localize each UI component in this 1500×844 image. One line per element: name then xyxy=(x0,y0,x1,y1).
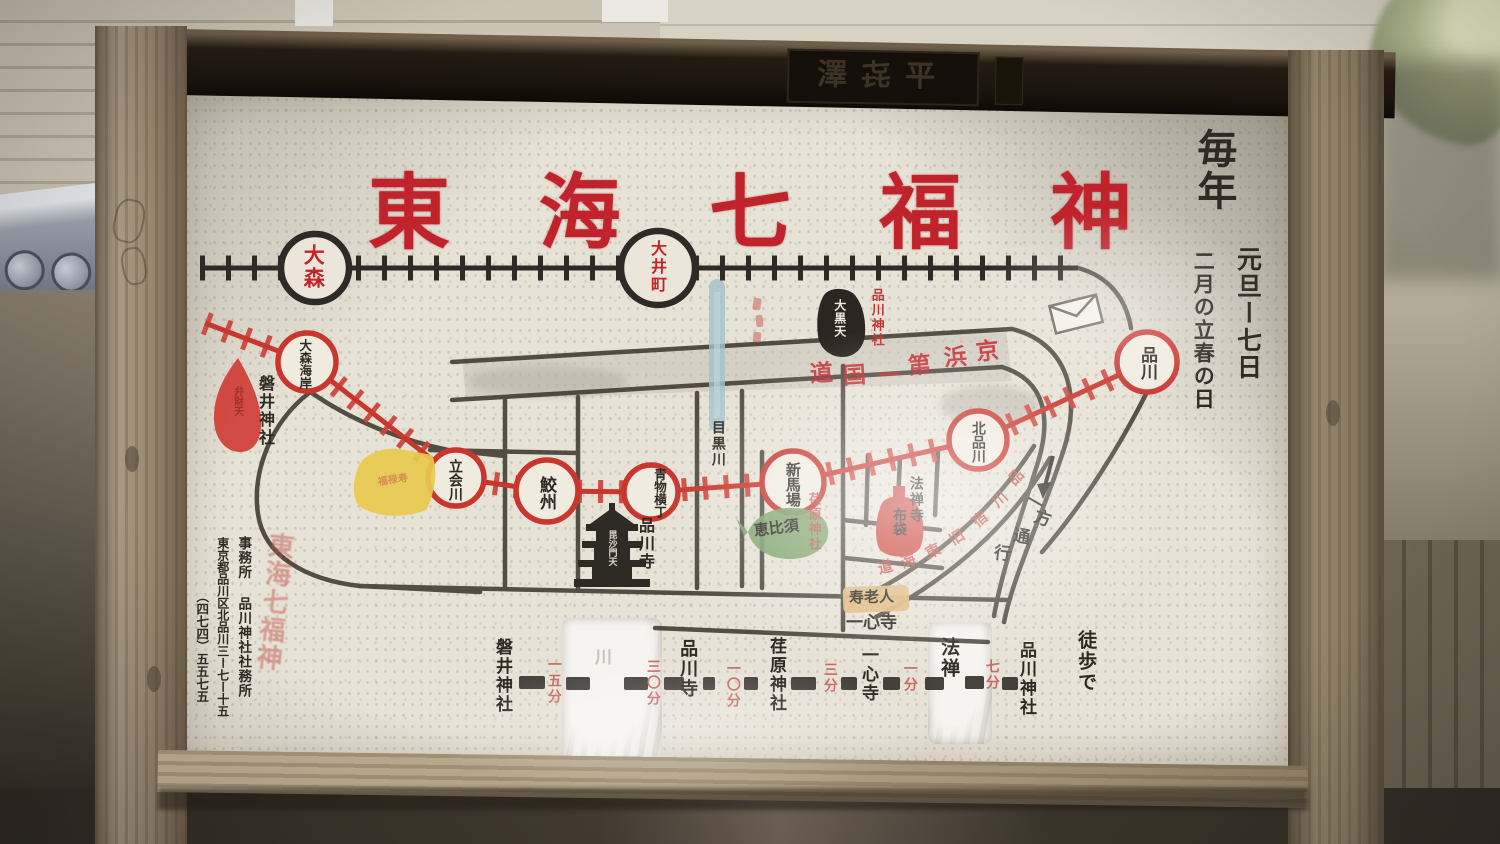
station-label-shinagawa: 品川 xyxy=(1138,342,1156,384)
maker-plaque: 澤㐂平 xyxy=(787,49,980,107)
one-way-char: 通 xyxy=(1012,527,1032,548)
title-char: 福 xyxy=(879,146,961,246)
ebara-jinja-label: 荏原神社 xyxy=(806,492,820,556)
faded-red-mark xyxy=(752,298,762,311)
window-sill xyxy=(602,0,668,22)
route-time: 一〇分 xyxy=(725,661,740,709)
road-char: 浜 xyxy=(943,345,968,371)
shinagawa-ji-label: 品川寺 xyxy=(636,517,653,587)
left-post xyxy=(95,26,187,844)
route-name: 品川寺 xyxy=(678,639,697,721)
wood-knot xyxy=(1326,400,1340,426)
route-time: 一五分 xyxy=(546,657,561,711)
wood-grain xyxy=(1288,50,1384,844)
schedule-every-year: 毎年 xyxy=(1192,128,1234,238)
meguro-river-label: 目黒川 xyxy=(710,420,725,472)
wall-shadow-left xyxy=(0,290,100,844)
jr-station-omori-label: 大森 xyxy=(302,244,324,294)
station-label-tachiaigawa: 立会川 xyxy=(447,455,462,505)
route-time: 三分 xyxy=(822,662,837,702)
iwai-jinja-label: 磐井神社 xyxy=(256,375,273,457)
route-name: 一心寺 xyxy=(859,646,877,714)
photo-scene: 東 海 七 福 神 毎年 元旦ー七日 二月の立春の日 大森 大井町 大森海岸 立… xyxy=(0,0,1500,844)
office-line2: 東京都品川区北品川三ー七ー十五 xyxy=(216,537,229,717)
road-char: 一 xyxy=(877,363,902,389)
road-char: 道 xyxy=(809,361,834,387)
walk-note: 徒歩で xyxy=(1076,630,1096,710)
title-char: 七 xyxy=(709,146,791,246)
right-post xyxy=(1288,50,1384,844)
roof-tile-end xyxy=(49,250,94,295)
daikokuten-label: 大黒天 xyxy=(833,299,846,351)
shinagawa-jinja-label: 品川神社 xyxy=(869,288,883,350)
title-char: 海 xyxy=(538,146,620,246)
route-name: 品川神社 xyxy=(1017,641,1035,729)
route-time: 七分 xyxy=(984,659,999,701)
route-name: 磐井神社 xyxy=(493,638,511,730)
faded-sketch xyxy=(940,385,1040,425)
road-shading xyxy=(468,366,628,396)
wood-knot xyxy=(125,446,139,472)
jr-station-oimachi-label: 大井町 xyxy=(648,240,665,298)
maker-plaque-side xyxy=(995,57,1024,106)
hotei-label: 布袋 xyxy=(891,508,906,546)
wood-grain xyxy=(95,26,187,844)
schedule-spring: 二月の立春の日 xyxy=(1192,250,1214,420)
one-way-char: 行 xyxy=(993,544,1012,564)
hozen-ji-label: 法禅寺 xyxy=(908,476,923,536)
rail-shadow xyxy=(158,788,1308,810)
faded-red-mark xyxy=(753,332,762,344)
benzaiten-label: 弁財天 xyxy=(231,386,242,430)
bishamonten-label: 毘沙門天 xyxy=(606,530,616,580)
route-time: 三〇分 xyxy=(645,659,660,711)
road-char: 第 xyxy=(907,353,932,379)
office-line3: （四七四）五五七五 xyxy=(195,590,208,720)
post-graffiti xyxy=(108,195,162,305)
route-time: 一分 xyxy=(902,661,917,701)
office-line1: 事務所 品川神社社務所 xyxy=(236,536,250,712)
route-name: 法禅 xyxy=(939,637,959,701)
wood-knot xyxy=(147,666,161,692)
station-label-samezu: 鮫州 xyxy=(537,472,555,514)
title-char: 神 xyxy=(1050,146,1132,246)
faded-red-mark xyxy=(755,315,763,328)
schedule-dates: 元旦ー七日 xyxy=(1234,246,1261,416)
road-char: 国 xyxy=(842,363,867,389)
station-label-kitashinagawa: 北品川 xyxy=(970,417,985,467)
route-name: 荏原神社 xyxy=(767,637,785,727)
route-name-worn: 川 xyxy=(592,648,610,708)
wall-fixture xyxy=(295,0,333,26)
station-label-shimbamba: 新馬場 xyxy=(784,458,800,510)
road-char: 京 xyxy=(975,339,1000,366)
station-label-omorikaigan: 大森海岸 xyxy=(298,335,311,393)
jurojin-label: 寿老人 xyxy=(849,589,895,606)
station-label-aomonoyokocho: 青物横丁 xyxy=(636,468,666,518)
title-char: 東 xyxy=(368,146,450,246)
roof-tile-end xyxy=(2,248,47,293)
isshin-ji-label: 一心寺 xyxy=(846,614,897,632)
board-title: 東 海 七 福 神 xyxy=(368,146,1132,246)
